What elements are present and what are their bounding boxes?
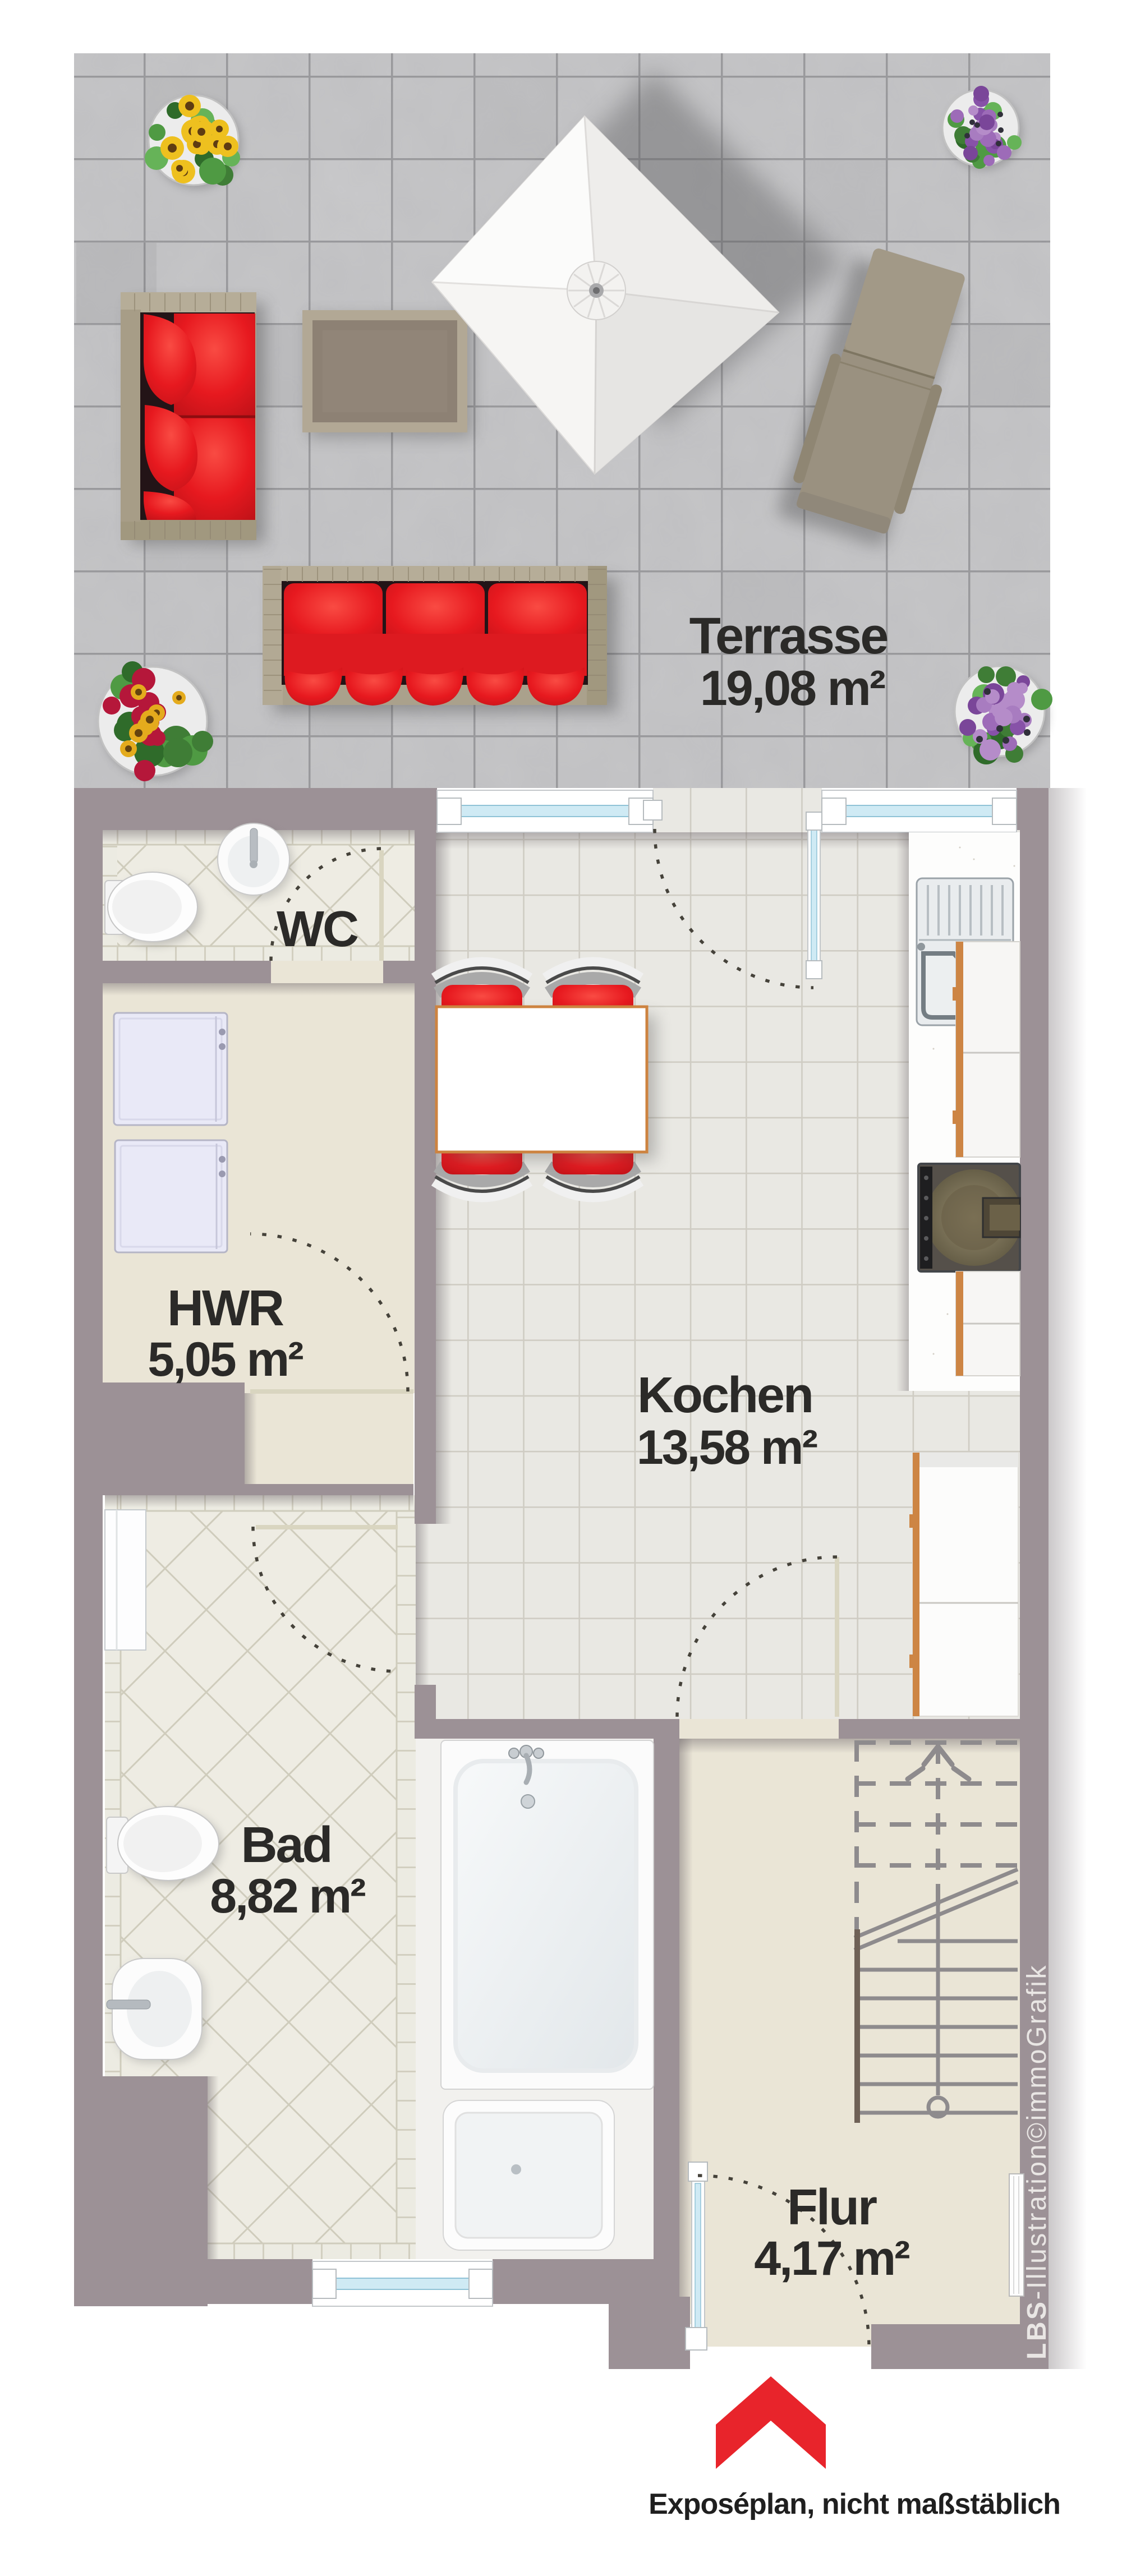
svg-text:HWR: HWR <box>167 1280 284 1337</box>
svg-text:5,05 m²: 5,05 m² <box>148 1333 303 1386</box>
svg-text:Exposéplan, nicht maßstäblich: Exposéplan, nicht maßstäblich <box>649 2488 1060 2520</box>
svg-text:Terrasse: Terrasse <box>689 607 888 665</box>
svg-text:4,17 m²: 4,17 m² <box>754 2232 909 2285</box>
svg-text:8,82 m²: 8,82 m² <box>210 1869 365 1923</box>
svg-text:19,08 m²: 19,08 m² <box>700 660 885 716</box>
svg-text:Bad: Bad <box>241 1817 331 1873</box>
svg-text:13,58 m²: 13,58 m² <box>637 1421 817 1474</box>
svg-text:WC: WC <box>277 901 358 957</box>
svg-text:Kochen: Kochen <box>637 1367 812 1423</box>
svg-text:Flur: Flur <box>787 2179 877 2236</box>
svg-text:LBS-Illustration©immoGrafik: LBS-Illustration©immoGrafik <box>1022 1964 1052 2360</box>
